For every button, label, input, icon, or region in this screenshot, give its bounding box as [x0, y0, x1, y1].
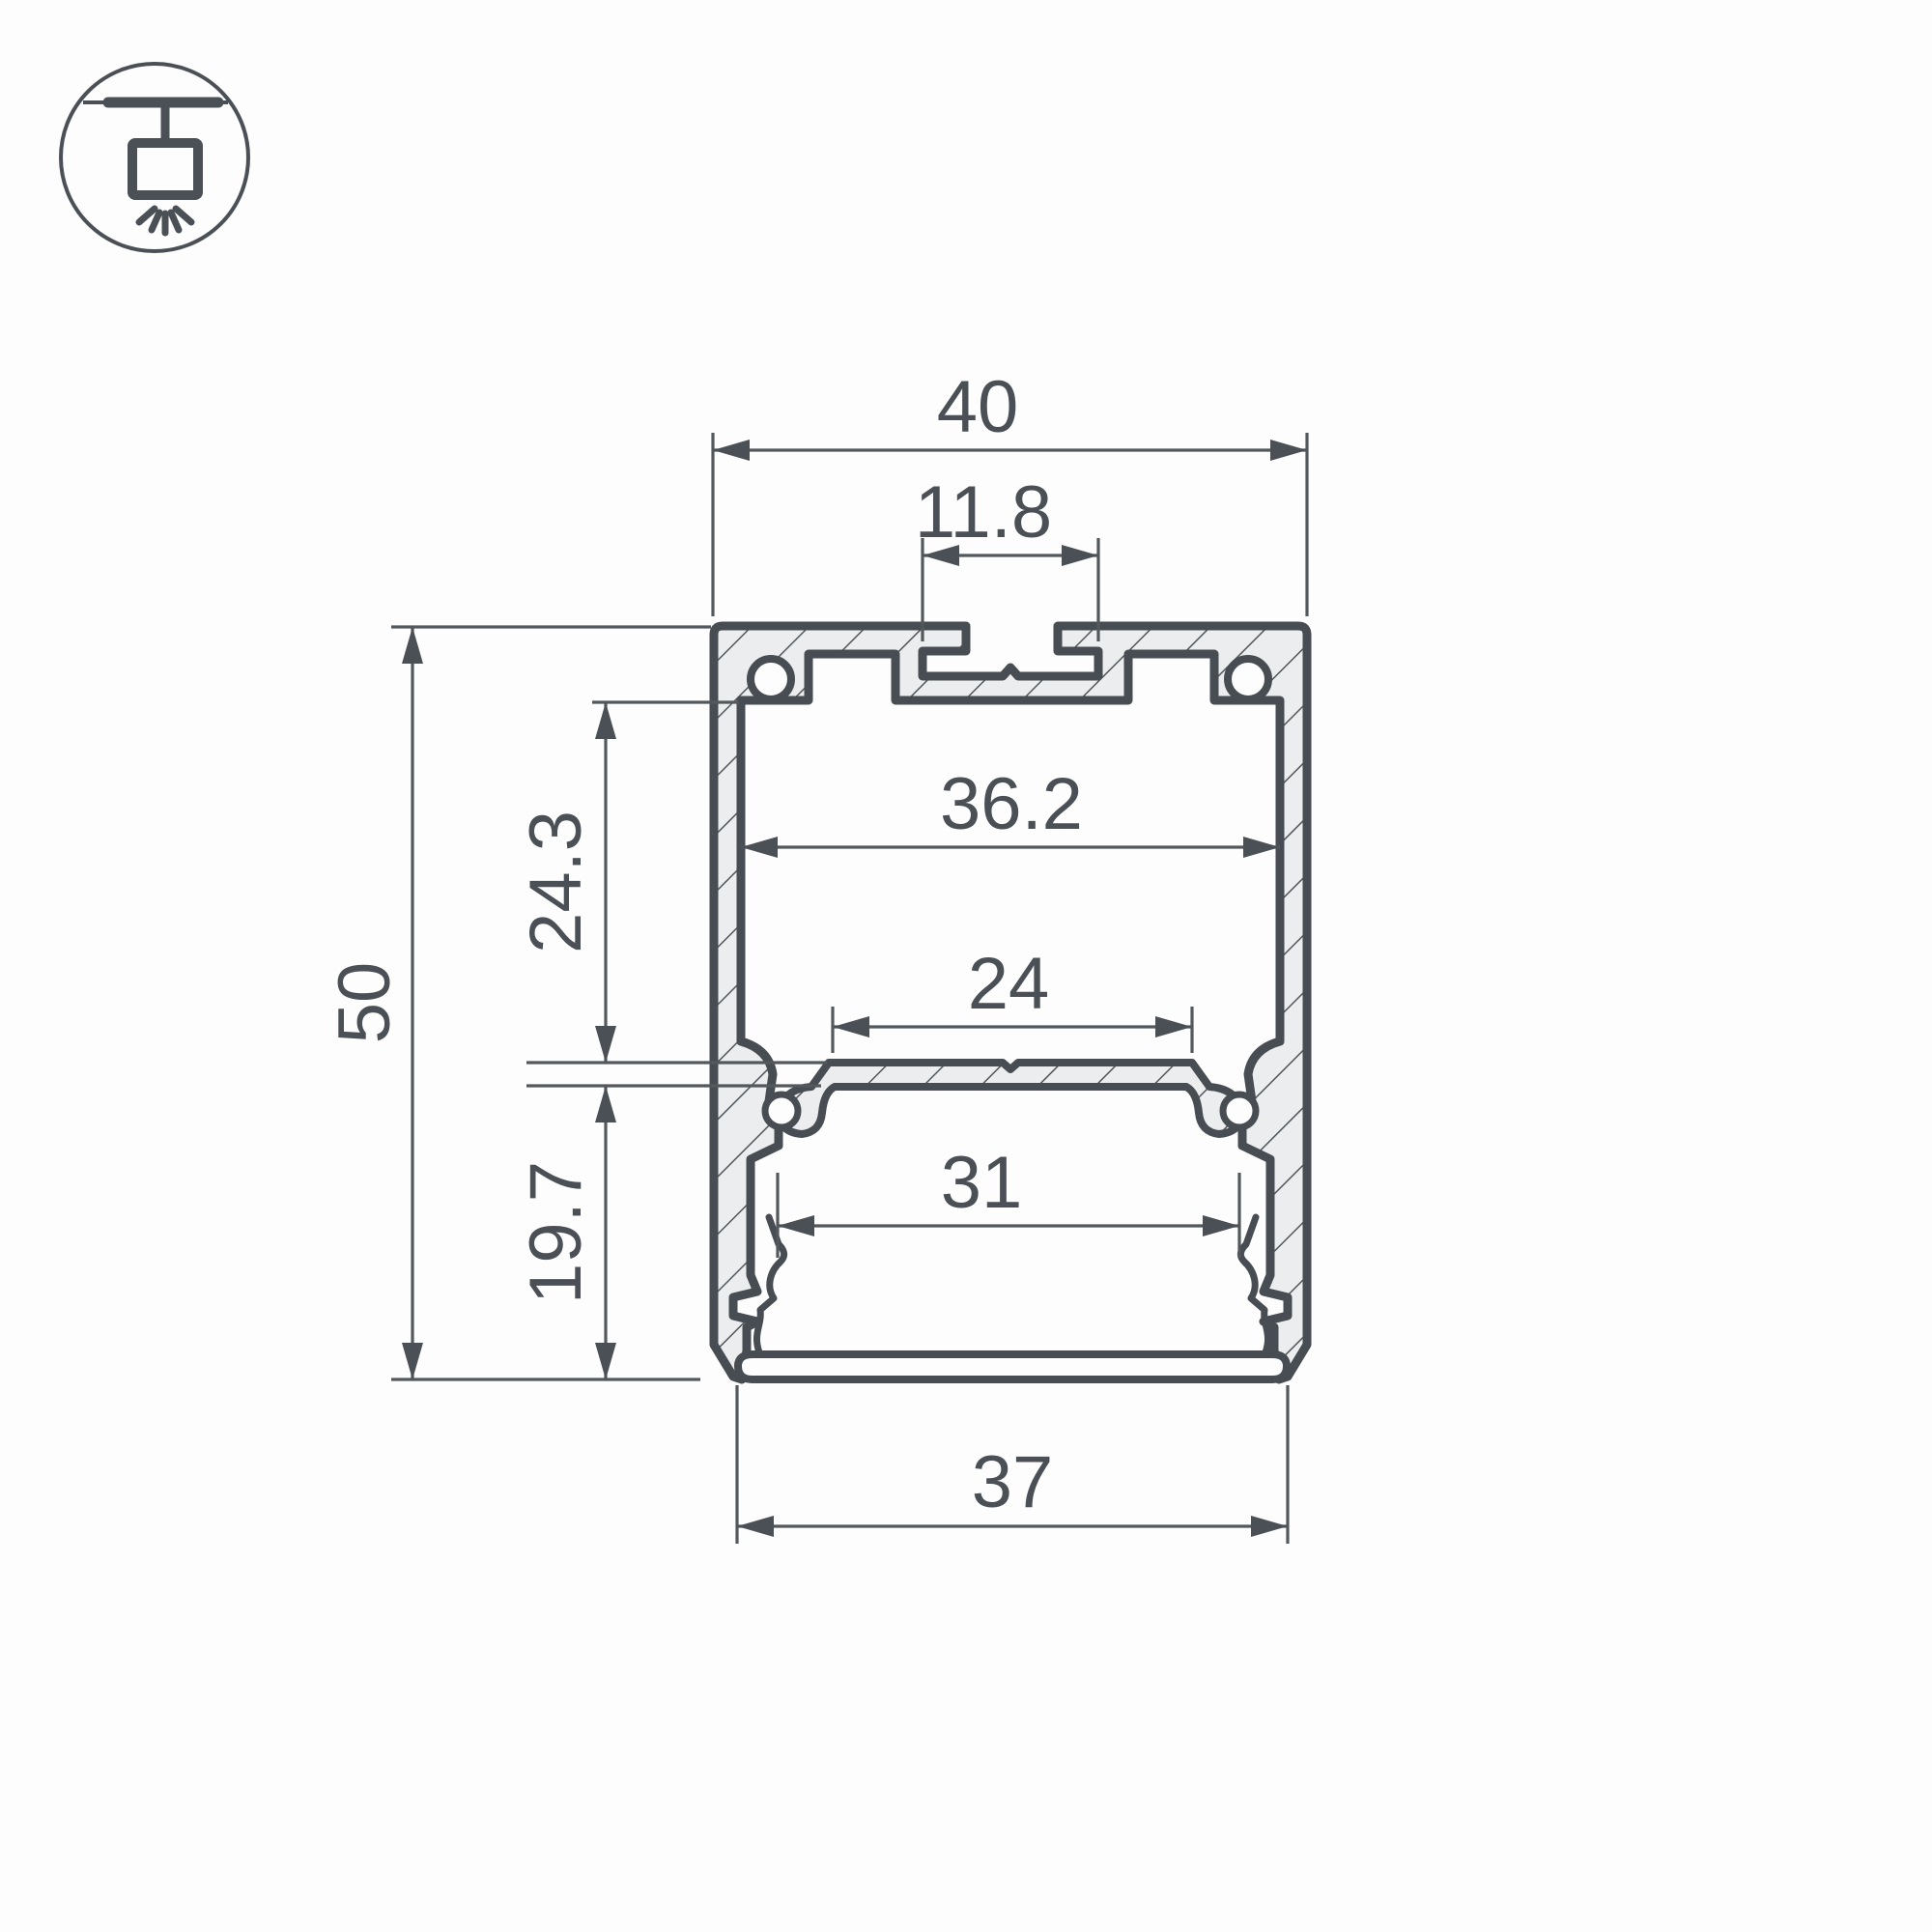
- arrow-up-icon: [402, 627, 423, 664]
- arrow-left-icon: [833, 1016, 869, 1037]
- dim-label-overall-width: 40: [937, 366, 1019, 448]
- drawing-canvas: 40 11.8 36.2 24: [0, 0, 1932, 1932]
- dim-label-upper-chamber-height: 24.3: [515, 810, 597, 953]
- arrow-right-icon: [1155, 1016, 1192, 1037]
- profile-drawing-svg: 40 11.8 36.2 24: [0, 0, 1932, 1932]
- arrow-left-icon: [741, 837, 778, 858]
- dimension-led-plate-width: 24: [833, 943, 1192, 1053]
- dimension-upper-chamber-height: 24.3: [515, 702, 827, 1063]
- arrow-right-icon: [1251, 1516, 1288, 1537]
- arrow-left-icon: [713, 440, 750, 461]
- dimension-top-slot-width: 11.8: [915, 471, 1098, 641]
- diffuser-cover: [738, 1354, 1287, 1379]
- diffuser-clip-left: [756, 1217, 783, 1352]
- arrow-right-icon: [1270, 440, 1307, 461]
- plate-screw-boss-left-icon: [765, 1094, 798, 1127]
- plate-screw-boss-right-icon: [1223, 1094, 1256, 1127]
- pendant-light-icon: [61, 64, 248, 251]
- icon-light-rays: [139, 209, 191, 233]
- arrow-left-icon: [737, 1516, 774, 1537]
- arrow-down-icon: [402, 1343, 423, 1379]
- arrow-left-icon: [778, 1215, 814, 1236]
- screw-port-right-icon: [1228, 659, 1268, 699]
- screw-port-left-icon: [751, 659, 791, 699]
- dim-label-lower-inner-width: 31: [941, 1142, 1023, 1224]
- arrow-down-icon: [595, 1343, 616, 1379]
- arrow-up-icon: [595, 702, 616, 739]
- dimension-bottom-width: 37: [737, 1385, 1288, 1544]
- arrow-right-icon: [1203, 1215, 1239, 1236]
- led-mounting-plate: [779, 1063, 1242, 1134]
- dimension-lower-inner-width: 31: [778, 1142, 1239, 1258]
- dim-label-overall-height: 50: [324, 962, 406, 1044]
- arrow-right-icon: [1243, 837, 1280, 858]
- arrow-down-icon: [595, 1026, 616, 1063]
- dimension-inner-width: 36.2: [741, 763, 1280, 858]
- dim-label-top-slot-width: 11.8: [915, 471, 1052, 554]
- dim-label-inner-width: 36.2: [940, 763, 1083, 845]
- dim-label-lower-chamber-height: 19.7: [515, 1161, 597, 1304]
- dim-label-bottom-width: 37: [972, 1441, 1054, 1523]
- icon-lamp-box: [132, 143, 198, 195]
- dim-label-led-plate-width: 24: [968, 943, 1050, 1025]
- arrow-right-icon: [1062, 545, 1098, 566]
- arrow-up-icon: [595, 1086, 616, 1122]
